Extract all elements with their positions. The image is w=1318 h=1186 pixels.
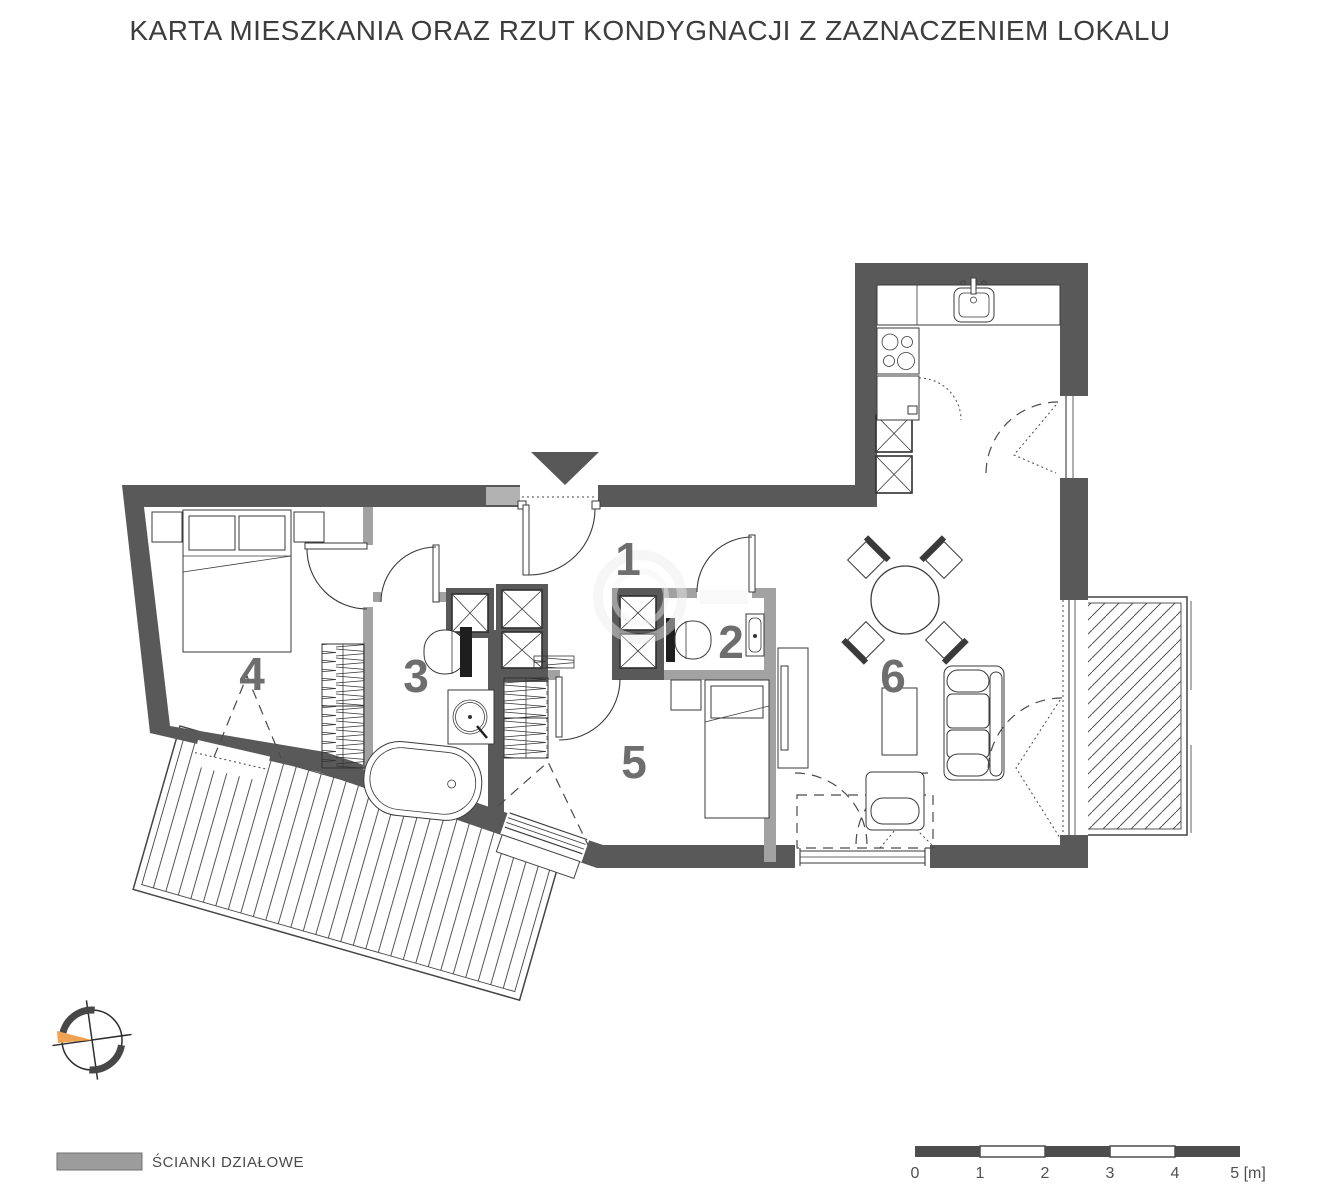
single-bed bbox=[705, 680, 769, 818]
shaft-hatch-strip bbox=[534, 656, 574, 668]
scale-tick-4: 4 bbox=[1171, 1165, 1180, 1182]
wc-door bbox=[697, 535, 755, 592]
legend: ŚCIANKI DZIAŁOWE bbox=[57, 1153, 304, 1171]
living-balcony-glazing bbox=[1060, 600, 1088, 835]
room-number-5: 5 bbox=[621, 736, 647, 788]
scale-tick-2: 2 bbox=[1041, 1165, 1050, 1182]
kitchen-window bbox=[1060, 396, 1088, 478]
bedroom5-door bbox=[556, 677, 620, 740]
washbasin-wc bbox=[746, 614, 764, 656]
compass-icon bbox=[47, 995, 137, 1085]
pillow bbox=[189, 516, 235, 550]
double-bed bbox=[183, 510, 291, 652]
wardrobe-hall bbox=[504, 678, 548, 758]
entrance-sill bbox=[486, 487, 520, 505]
armchair bbox=[866, 772, 924, 830]
nightstand bbox=[152, 512, 182, 542]
nightstand bbox=[671, 680, 701, 710]
wc bbox=[666, 614, 764, 662]
bedroom4-door bbox=[305, 543, 367, 609]
shaft-kitchen-bottom bbox=[876, 456, 912, 493]
living-room bbox=[778, 535, 1062, 848]
scale-tick-1: 1 bbox=[976, 1165, 985, 1182]
scale-tick-3: 3 bbox=[1106, 1165, 1115, 1182]
room-number-3: 3 bbox=[403, 650, 429, 702]
scale-tick-0: 0 bbox=[911, 1165, 920, 1182]
bathroom-door bbox=[381, 545, 439, 602]
room-number-1: 1 bbox=[615, 533, 641, 585]
stove bbox=[877, 328, 919, 374]
toilet-bathroom bbox=[424, 627, 472, 677]
entrance-marker-icon bbox=[531, 452, 599, 485]
balcony-door-swing-leaf bbox=[1016, 700, 1060, 838]
living-bottom-window bbox=[795, 845, 930, 870]
shaft-bath-left bbox=[452, 594, 488, 632]
floor-plan-canvas: KARTA MIESZKANIA ORAZ RZUT KONDYGNACJI Z… bbox=[0, 0, 1318, 1186]
entrance-door bbox=[523, 505, 595, 575]
dining-table bbox=[871, 566, 939, 634]
scale-bar: 0 1 2 3 4 5 [m] bbox=[911, 1146, 1266, 1182]
shaft-kitchen-top bbox=[876, 415, 912, 452]
kitchen-balcony-door-swing bbox=[986, 402, 1058, 474]
balcony-door-swing bbox=[795, 773, 867, 845]
oven bbox=[877, 376, 961, 420]
room-number-4: 4 bbox=[239, 648, 265, 700]
sofa bbox=[944, 666, 1004, 780]
pillow bbox=[711, 686, 763, 718]
dining-chair bbox=[923, 619, 968, 664]
shaft-core-top bbox=[502, 590, 542, 628]
scale-tick-5: 5 [m] bbox=[1230, 1165, 1266, 1182]
pillow bbox=[239, 516, 285, 550]
washbasin-bathroom bbox=[448, 690, 494, 744]
sideboard bbox=[778, 648, 808, 768]
legend-label: ŚCIANKI DZIAŁOWE bbox=[152, 1153, 304, 1171]
legend-swatch bbox=[57, 1153, 142, 1170]
room-number-2: 2 bbox=[718, 616, 744, 668]
floor-plan-page: KARTA MIESZKANIA ORAZ RZUT KONDYGNACJI Z… bbox=[0, 0, 1318, 1186]
nightstand bbox=[294, 512, 324, 542]
page-title: KARTA MIESZKANIA ORAZ RZUT KONDYGNACJI Z… bbox=[129, 15, 1170, 46]
room-number-6: 6 bbox=[880, 650, 906, 702]
wardrobe-bedroom4 bbox=[322, 644, 364, 768]
